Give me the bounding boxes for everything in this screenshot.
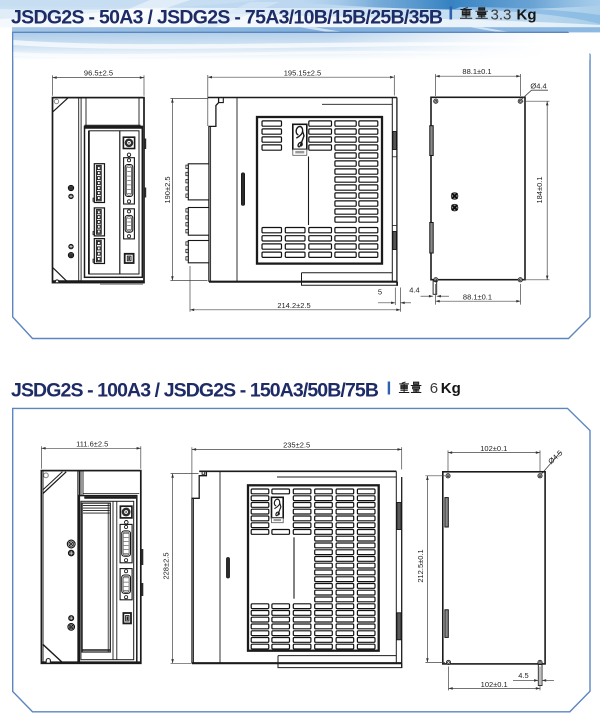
svg-text:5: 5 — [378, 288, 382, 297]
svg-text:190±2.5: 190±2.5 — [163, 176, 172, 203]
svg-text:88.1±0.1: 88.1±0.1 — [463, 293, 492, 302]
svg-text:88.1±0.1: 88.1±0.1 — [462, 67, 491, 76]
svg-text:102±0.1: 102±0.1 — [480, 444, 507, 453]
svg-text:Kg: Kg — [441, 380, 461, 397]
svg-text:Ø4.4: Ø4.4 — [530, 81, 546, 90]
svg-text:JSDG2S - 50A3 / JSDG2S - 75A3/: JSDG2S - 50A3 / JSDG2S - 75A3/10B/15B/25… — [11, 6, 443, 28]
svg-text:111.6±2.5: 111.6±2.5 — [76, 440, 108, 449]
svg-text:JSDG2S - 100A3 / JSDG2S - 150A: JSDG2S - 100A3 / JSDG2S - 150A3/50B/75B — [11, 379, 379, 401]
svg-text:235±2.5: 235±2.5 — [283, 441, 310, 450]
svg-text:195.15±2.5: 195.15±2.5 — [284, 68, 321, 77]
svg-text:4.5: 4.5 — [518, 671, 528, 680]
svg-text:96.5±2.5: 96.5±2.5 — [84, 69, 113, 78]
svg-text:214.2±2.5: 214.2±2.5 — [277, 301, 310, 310]
svg-text:4.4: 4.4 — [409, 286, 419, 295]
svg-text:6: 6 — [430, 380, 438, 397]
svg-text:3.3: 3.3 — [491, 7, 512, 24]
svg-text:212.5±0.1: 212.5±0.1 — [416, 549, 425, 582]
svg-text:Kg: Kg — [517, 7, 537, 24]
svg-text:102±0.1: 102±0.1 — [481, 680, 508, 689]
svg-text:228±2.5: 228±2.5 — [161, 552, 170, 579]
svg-text:184±0.1: 184±0.1 — [535, 176, 544, 203]
